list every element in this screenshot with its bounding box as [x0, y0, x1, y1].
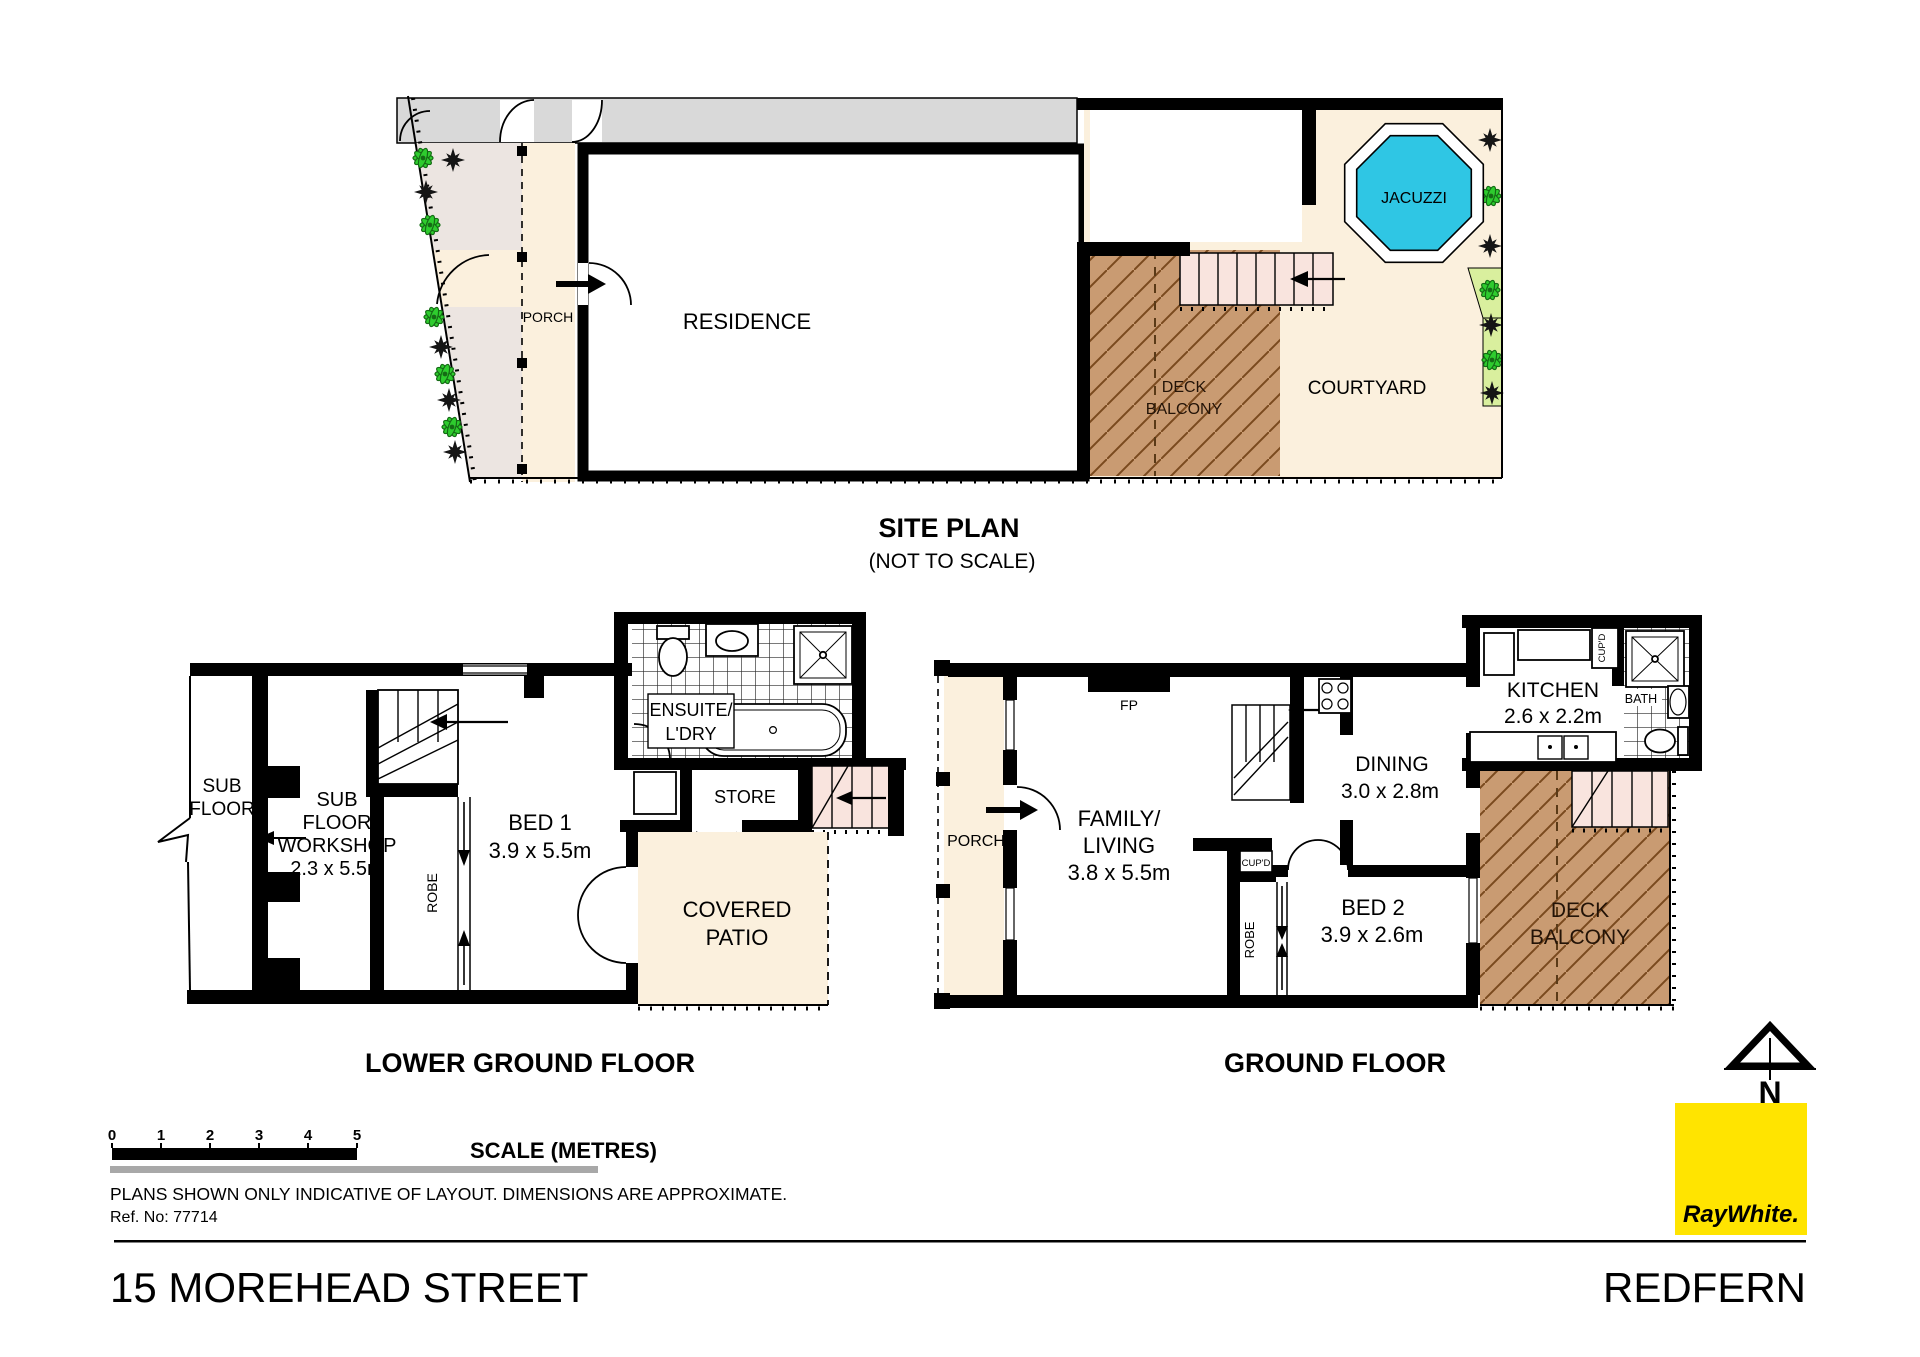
- deck-label: BALCONY: [1530, 926, 1630, 949]
- kitchen-dimensions: 2.6 x 2.2m: [1504, 705, 1602, 728]
- shower-icon: [794, 626, 852, 684]
- toilet-icon: [659, 638, 687, 676]
- wall: [190, 663, 634, 676]
- scale-tick: 2: [206, 1127, 214, 1144]
- scale-tick: 1: [157, 1127, 165, 1144]
- floorplan-canvas: JACUZZI RESIDENCE PORCH DECK BALCONY COU…: [0, 0, 1920, 1357]
- family-dimensions: 3.8 x 5.5m: [1068, 860, 1171, 885]
- deck-label: DECK: [1551, 899, 1609, 922]
- robe-label: ROBE: [1242, 921, 1257, 958]
- bed2-dimensions: 3.9 x 2.6m: [1321, 922, 1424, 947]
- workshop-label: SUB: [316, 789, 357, 811]
- wall: [1272, 865, 1288, 877]
- fence-post: [936, 772, 950, 786]
- site-deck-label: DECK: [1162, 379, 1207, 396]
- residence-room: [583, 149, 1084, 476]
- rear-annex: [1090, 110, 1302, 242]
- store-label: STORE: [714, 787, 776, 807]
- address-text: 15 MOREHEAD STREET: [110, 1264, 588, 1311]
- site-plan-title: SITE PLAN: [878, 513, 1019, 543]
- footer-rule: [114, 1240, 1806, 1243]
- floorplan-page: JACUZZI RESIDENCE PORCH DECK BALCONY COU…: [0, 0, 1920, 1357]
- fence-post: [517, 252, 527, 262]
- ensuite-label: L'DRY: [665, 724, 716, 744]
- site-porch-label: PORCH: [523, 309, 574, 325]
- subfloor-label: SUB: [202, 776, 241, 797]
- scale-tick: 3: [255, 1127, 263, 1144]
- ground-porch-label: PORCH: [947, 833, 1005, 850]
- wall: [1077, 242, 1190, 256]
- family-label: FAMILY/: [1078, 806, 1162, 831]
- deck-stairs: [1572, 771, 1668, 831]
- wall-pier: [252, 766, 300, 798]
- scale-tick: 5: [353, 1127, 361, 1144]
- wall: [1077, 98, 1502, 110]
- raywhite-logo: RayWhite.: [1675, 1103, 1807, 1235]
- fireplace-label: FP: [1120, 697, 1138, 713]
- jacuzzi-label: JACUZZI: [1381, 190, 1447, 207]
- cooktop-icon: [1319, 679, 1351, 713]
- wall: [1302, 110, 1316, 205]
- wall: [1227, 838, 1240, 995]
- lower-ground-floor: ROBE: [158, 612, 906, 1078]
- workshop-label: WORKSHOP: [278, 835, 397, 857]
- subfloor-edge: [188, 862, 190, 990]
- ground-robe: ROBE: [1242, 882, 1288, 995]
- laundry-tub-icon: [634, 772, 676, 814]
- wall: [252, 676, 268, 992]
- scale-label: SCALE (METRES): [470, 1138, 657, 1163]
- ensuite-label: ENSUITE/: [649, 700, 732, 720]
- ground-deck: DECK BALCONY: [1480, 771, 1674, 1009]
- covered-patio: COVERED PATIO: [578, 832, 828, 1009]
- scale-bar: 0 1 2 3 4 5 SCALE (METRES): [108, 1127, 657, 1173]
- break-line: [158, 818, 190, 862]
- wall: [1348, 865, 1466, 877]
- fence-post: [517, 146, 527, 156]
- patio-label: COVERED: [683, 897, 792, 922]
- laneway-band: [397, 98, 1077, 143]
- residence-label: RESIDENCE: [683, 309, 811, 334]
- toilet-icon: [1645, 730, 1675, 753]
- suburb-text: REDFERN: [1603, 1264, 1806, 1311]
- lower-stairs: [366, 690, 508, 797]
- wall: [1240, 838, 1272, 851]
- lower-rear-stairs: [812, 758, 904, 836]
- dining-label: DINING: [1355, 753, 1429, 776]
- scale-tick: 4: [304, 1127, 313, 1144]
- lower-robe: ROBE: [370, 797, 470, 990]
- wall-pier: [524, 676, 544, 698]
- french-door-arc: [578, 867, 626, 915]
- scale-tick: 0: [108, 1127, 116, 1144]
- bathroom: BATH: [1620, 628, 1689, 758]
- site-stairs: [1180, 253, 1345, 309]
- cupboard-label: CUP'D: [1597, 633, 1608, 662]
- disclaimer: PLANS SHOWN ONLY INDICATIVE OF LAYOUT. D…: [110, 1184, 787, 1204]
- robe-label: ROBE: [424, 873, 440, 913]
- wall: [944, 995, 1478, 1008]
- plant-icon: [424, 306, 444, 327]
- workshop-dimensions: 2.3 x 5.5m: [290, 858, 383, 880]
- toilet-icon: [657, 626, 689, 639]
- bed1-label: BED 1: [508, 810, 572, 835]
- wall: [948, 663, 1475, 677]
- entry-arrow-head: [1020, 800, 1038, 820]
- subfloor-label: FLOOR: [189, 799, 254, 820]
- wall: [1077, 242, 1090, 478]
- site-plan-subtitle: (NOT TO SCALE): [869, 550, 1036, 573]
- bath-label: BATH: [1625, 692, 1657, 706]
- bench-icon: [1518, 630, 1590, 660]
- workshop-label: FLOOR: [303, 812, 372, 834]
- fireplace: [1088, 677, 1170, 692]
- courtyard-label: COURTYARD: [1308, 378, 1427, 399]
- shower-icon: [1626, 631, 1684, 687]
- ground-floor: CUP'D ROBE: [934, 615, 1702, 1078]
- north-arrow-icon: N: [1724, 1026, 1816, 1111]
- logo-text: RayWhite.: [1683, 1201, 1799, 1228]
- ref-number: Ref. No: 77714: [110, 1209, 218, 1226]
- wall: [1466, 943, 1480, 995]
- ensuite: ENSUITE/ L'DRY: [614, 612, 906, 770]
- ground-floor-title: GROUND FLOOR: [1224, 1048, 1446, 1078]
- separator-bar: [110, 1166, 598, 1173]
- hall-cupboard: CUP'D: [1236, 851, 1276, 882]
- family-label: LIVING: [1083, 833, 1155, 858]
- wall: [1003, 750, 1017, 785]
- jacuzzi: JACUZZI: [1345, 124, 1484, 263]
- wall: [1340, 820, 1353, 865]
- french-door-arc: [1288, 840, 1318, 870]
- french-door-arc: [578, 915, 626, 963]
- window: [1006, 700, 1014, 750]
- wall-pier: [252, 958, 300, 990]
- fence-post: [936, 884, 950, 898]
- wall: [1003, 830, 1017, 888]
- window: [1006, 888, 1014, 940]
- fence-post: [517, 358, 527, 368]
- wall: [1466, 833, 1480, 878]
- fence-post: [517, 464, 527, 474]
- wall: [1003, 677, 1017, 700]
- window: [1469, 878, 1477, 943]
- wall: [187, 990, 642, 1004]
- bed1-dimensions: 3.9 x 5.5m: [489, 838, 592, 863]
- wall: [1003, 940, 1017, 995]
- bed2-label: BED 2: [1341, 895, 1405, 920]
- cupboard-label: CUP'D: [1242, 858, 1271, 869]
- site-plan: JACUZZI RESIDENCE PORCH DECK BALCONY COU…: [397, 96, 1506, 573]
- kitchen-label: KITCHEN: [1507, 679, 1599, 702]
- dining-dimensions: 3.0 x 2.8m: [1341, 780, 1439, 803]
- fridge-icon: [1484, 633, 1514, 675]
- lower-ground-title: LOWER GROUND FLOOR: [365, 1048, 695, 1078]
- fence-post: [934, 660, 950, 676]
- site-deck-label: BALCONY: [1146, 401, 1223, 418]
- patio-label: PATIO: [706, 925, 769, 950]
